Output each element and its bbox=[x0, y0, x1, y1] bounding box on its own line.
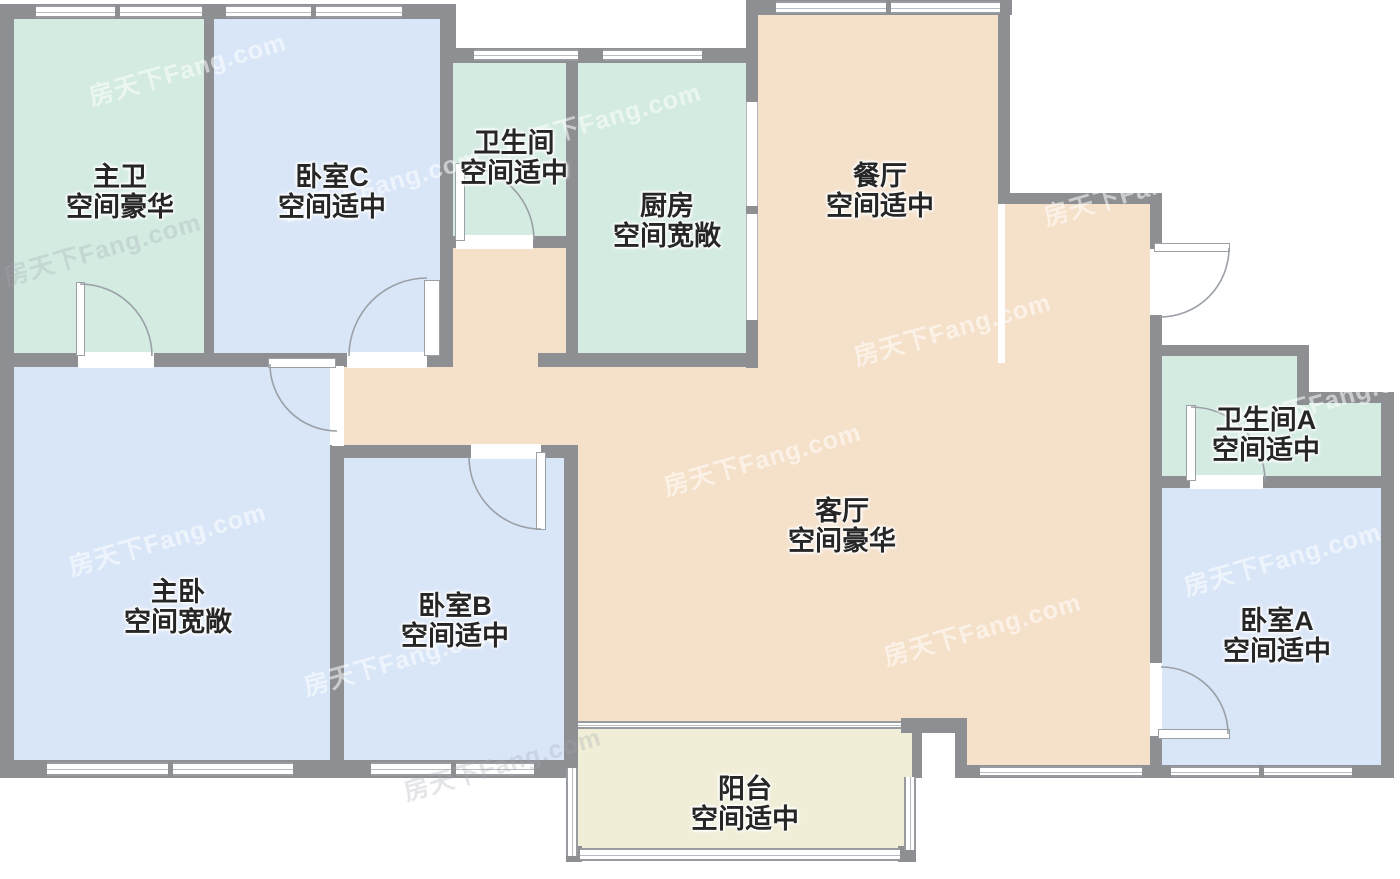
room-size: 空间适中 bbox=[419, 158, 609, 188]
door-opening-bathroom bbox=[456, 235, 533, 249]
wall bbox=[746, 0, 758, 104]
door-leaf-bedroom-c bbox=[424, 280, 440, 356]
label-master-bath: 主卫 空间豪华 bbox=[25, 162, 215, 222]
door-opening-master-bedroom bbox=[332, 366, 344, 446]
room-name: 卧室B bbox=[360, 591, 550, 621]
wall bbox=[1297, 392, 1393, 403]
label-bedroom-a: 卧室A 空间适中 bbox=[1182, 606, 1372, 666]
room-size: 空间宽敞 bbox=[83, 607, 273, 637]
room-size: 空间豪华 bbox=[25, 192, 215, 222]
room-size: 空间豪华 bbox=[747, 526, 937, 556]
door-leaf-master-bath bbox=[76, 282, 85, 356]
label-bedroom-b: 卧室B 空间适中 bbox=[360, 591, 550, 651]
room-hall-upper bbox=[453, 248, 566, 367]
room-name: 客厅 bbox=[747, 496, 937, 526]
room-name: 阳台 bbox=[650, 774, 840, 804]
wall bbox=[1263, 476, 1393, 488]
room-name: 卫生间 bbox=[419, 128, 609, 158]
door-leaf-master-bedroom bbox=[268, 358, 336, 368]
door-opening-bathroom-a bbox=[1190, 475, 1263, 489]
room-size: 空间适中 bbox=[1171, 435, 1361, 465]
window-divider bbox=[168, 762, 173, 776]
wall bbox=[1381, 392, 1394, 778]
door-opening-bedroom-b bbox=[471, 444, 541, 459]
door-opening-bedroom-a bbox=[1150, 663, 1162, 736]
label-bathroom-a: 卫生间A 空间适中 bbox=[1171, 405, 1361, 465]
door-opening-entry bbox=[1150, 249, 1162, 315]
wall bbox=[746, 320, 758, 368]
room-name: 餐厅 bbox=[785, 161, 975, 191]
room-name: 卧室A bbox=[1182, 606, 1372, 636]
label-living: 客厅 空间豪华 bbox=[747, 496, 937, 556]
room-size: 空间适中 bbox=[1182, 636, 1372, 666]
door-opening-bedroom-c bbox=[347, 352, 427, 368]
wall bbox=[1150, 345, 1309, 356]
label-bedroom-c: 卧室C 空间适中 bbox=[237, 162, 427, 222]
wall bbox=[0, 4, 14, 778]
wall bbox=[998, 0, 1010, 204]
label-balcony: 阳台 空间适中 bbox=[650, 774, 840, 834]
wall bbox=[440, 14, 453, 363]
window bbox=[603, 49, 702, 61]
window-divider bbox=[886, 1, 891, 14]
wall bbox=[440, 236, 456, 248]
balcony-window-right bbox=[904, 777, 916, 850]
door-leaf-entry bbox=[1154, 243, 1230, 252]
balcony-window-left bbox=[566, 768, 578, 856]
floor-plan: 房天下Fang.com 房天下Fang.com 房天下Fang.com 房天下F… bbox=[0, 0, 1400, 879]
room-size: 空间适中 bbox=[237, 192, 427, 222]
window-divider bbox=[115, 5, 120, 18]
room-size: 空间适中 bbox=[360, 621, 550, 651]
room-corridor bbox=[344, 367, 576, 448]
window-divider bbox=[311, 5, 316, 18]
room-name: 卧室C bbox=[237, 162, 427, 192]
room-name: 卫生间A bbox=[1171, 405, 1361, 435]
window bbox=[980, 766, 1142, 777]
wall bbox=[1150, 345, 1162, 663]
balcony-window-bottom bbox=[580, 848, 900, 861]
label-dining: 餐厅 空间适中 bbox=[785, 161, 975, 221]
wall bbox=[330, 445, 344, 763]
wall bbox=[955, 728, 967, 778]
window-divider bbox=[451, 762, 456, 776]
label-kitchen: 厨房 空间宽敞 bbox=[572, 191, 762, 251]
room-size: 空间适中 bbox=[650, 804, 840, 834]
window bbox=[474, 49, 578, 61]
room-entry-hall bbox=[1005, 204, 1150, 365]
room-living-se bbox=[967, 723, 1150, 768]
room-size: 空间适中 bbox=[785, 191, 975, 221]
room-master-bedroom bbox=[14, 367, 330, 760]
wall bbox=[1150, 476, 1190, 488]
wall bbox=[538, 353, 758, 367]
door-leaf-bedroom-b bbox=[536, 452, 546, 530]
room-name: 主卫 bbox=[25, 162, 215, 192]
wall bbox=[10, 353, 78, 367]
room-name: 厨房 bbox=[572, 191, 762, 221]
label-bathroom: 卫生间 空间适中 bbox=[419, 128, 609, 188]
room-size: 空间宽敞 bbox=[572, 221, 762, 251]
wall bbox=[912, 728, 922, 778]
wall bbox=[330, 445, 471, 458]
door-opening-master-bath bbox=[78, 352, 154, 368]
wall bbox=[998, 193, 1162, 204]
room-name: 主卧 bbox=[83, 577, 273, 607]
wall bbox=[1150, 193, 1162, 249]
window-divider bbox=[1259, 766, 1264, 777]
wall bbox=[1150, 736, 1162, 768]
wall bbox=[564, 445, 578, 765]
label-master-bedroom: 主卧 空间宽敞 bbox=[83, 577, 273, 637]
balcony-partition-window bbox=[578, 721, 901, 729]
door-leaf-bedroom-a bbox=[1158, 729, 1230, 739]
